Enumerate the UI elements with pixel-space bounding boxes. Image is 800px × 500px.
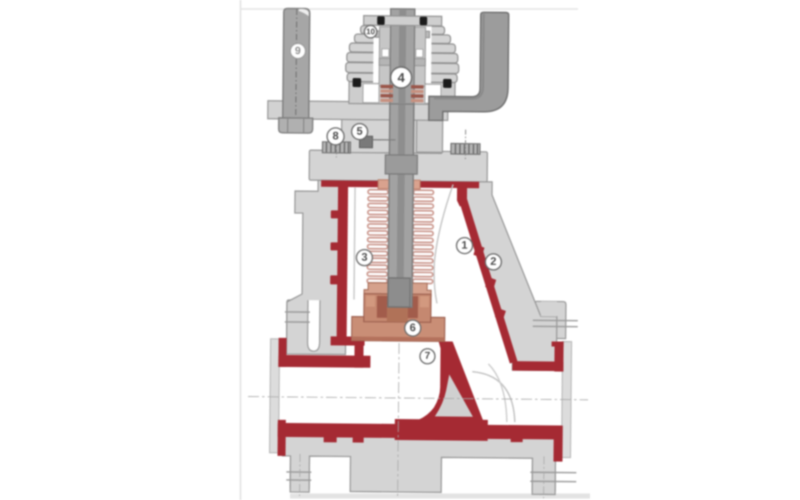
- svg-text:10: 10: [366, 27, 376, 36]
- svg-text:7: 7: [425, 351, 431, 362]
- svg-text:2: 2: [490, 256, 496, 268]
- svg-text:9: 9: [295, 45, 301, 57]
- svg-text:4: 4: [397, 70, 405, 85]
- svg-text:5: 5: [356, 126, 362, 138]
- svg-text:8: 8: [332, 130, 338, 142]
- svg-text:3: 3: [361, 252, 367, 264]
- svg-text:6: 6: [410, 322, 416, 334]
- svg-text:1: 1: [461, 240, 467, 252]
